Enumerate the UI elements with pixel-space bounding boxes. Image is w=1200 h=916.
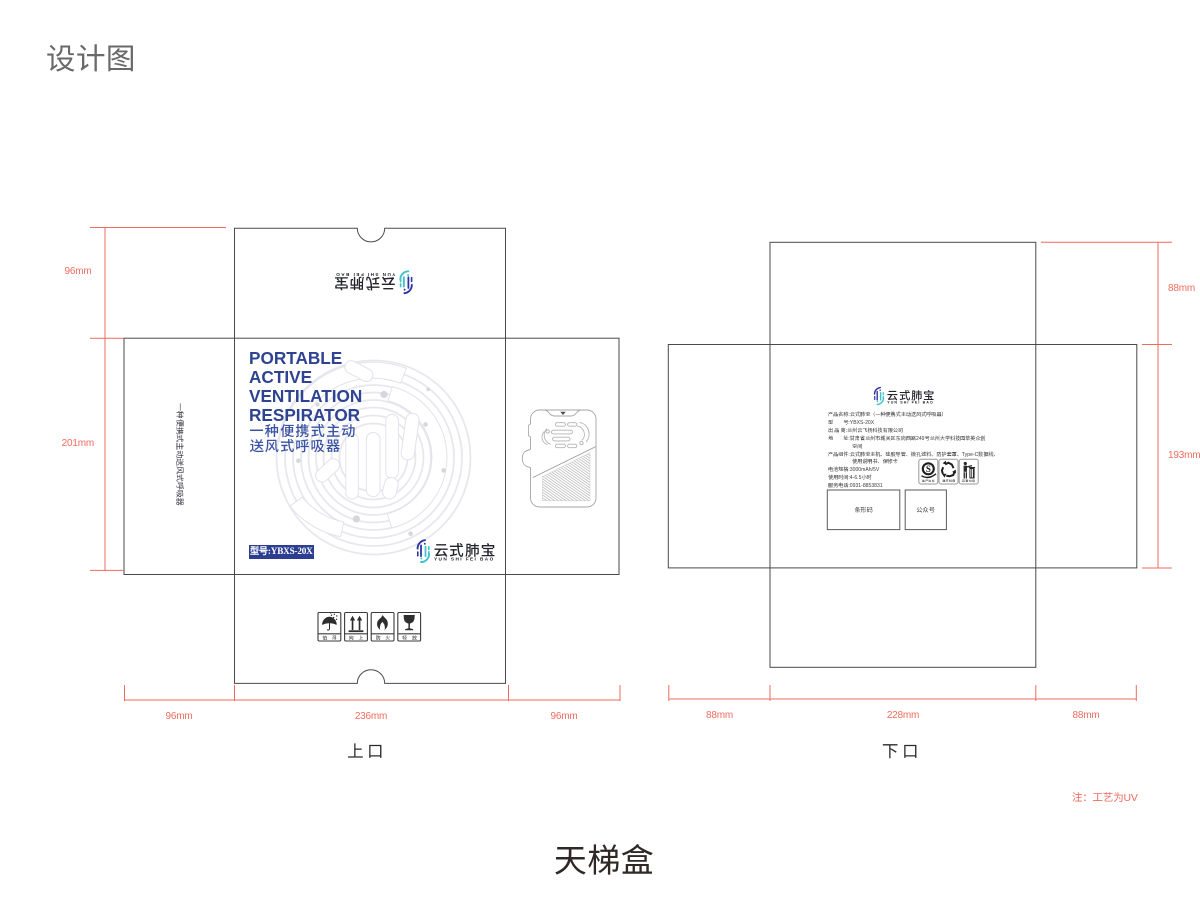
svg-text:防火: 防火 [376,634,396,641]
svg-text:轻放: 轻放 [402,634,422,641]
svg-text:向上: 向上 [349,634,369,641]
svg-text:怕湿: 怕湿 [322,634,342,641]
